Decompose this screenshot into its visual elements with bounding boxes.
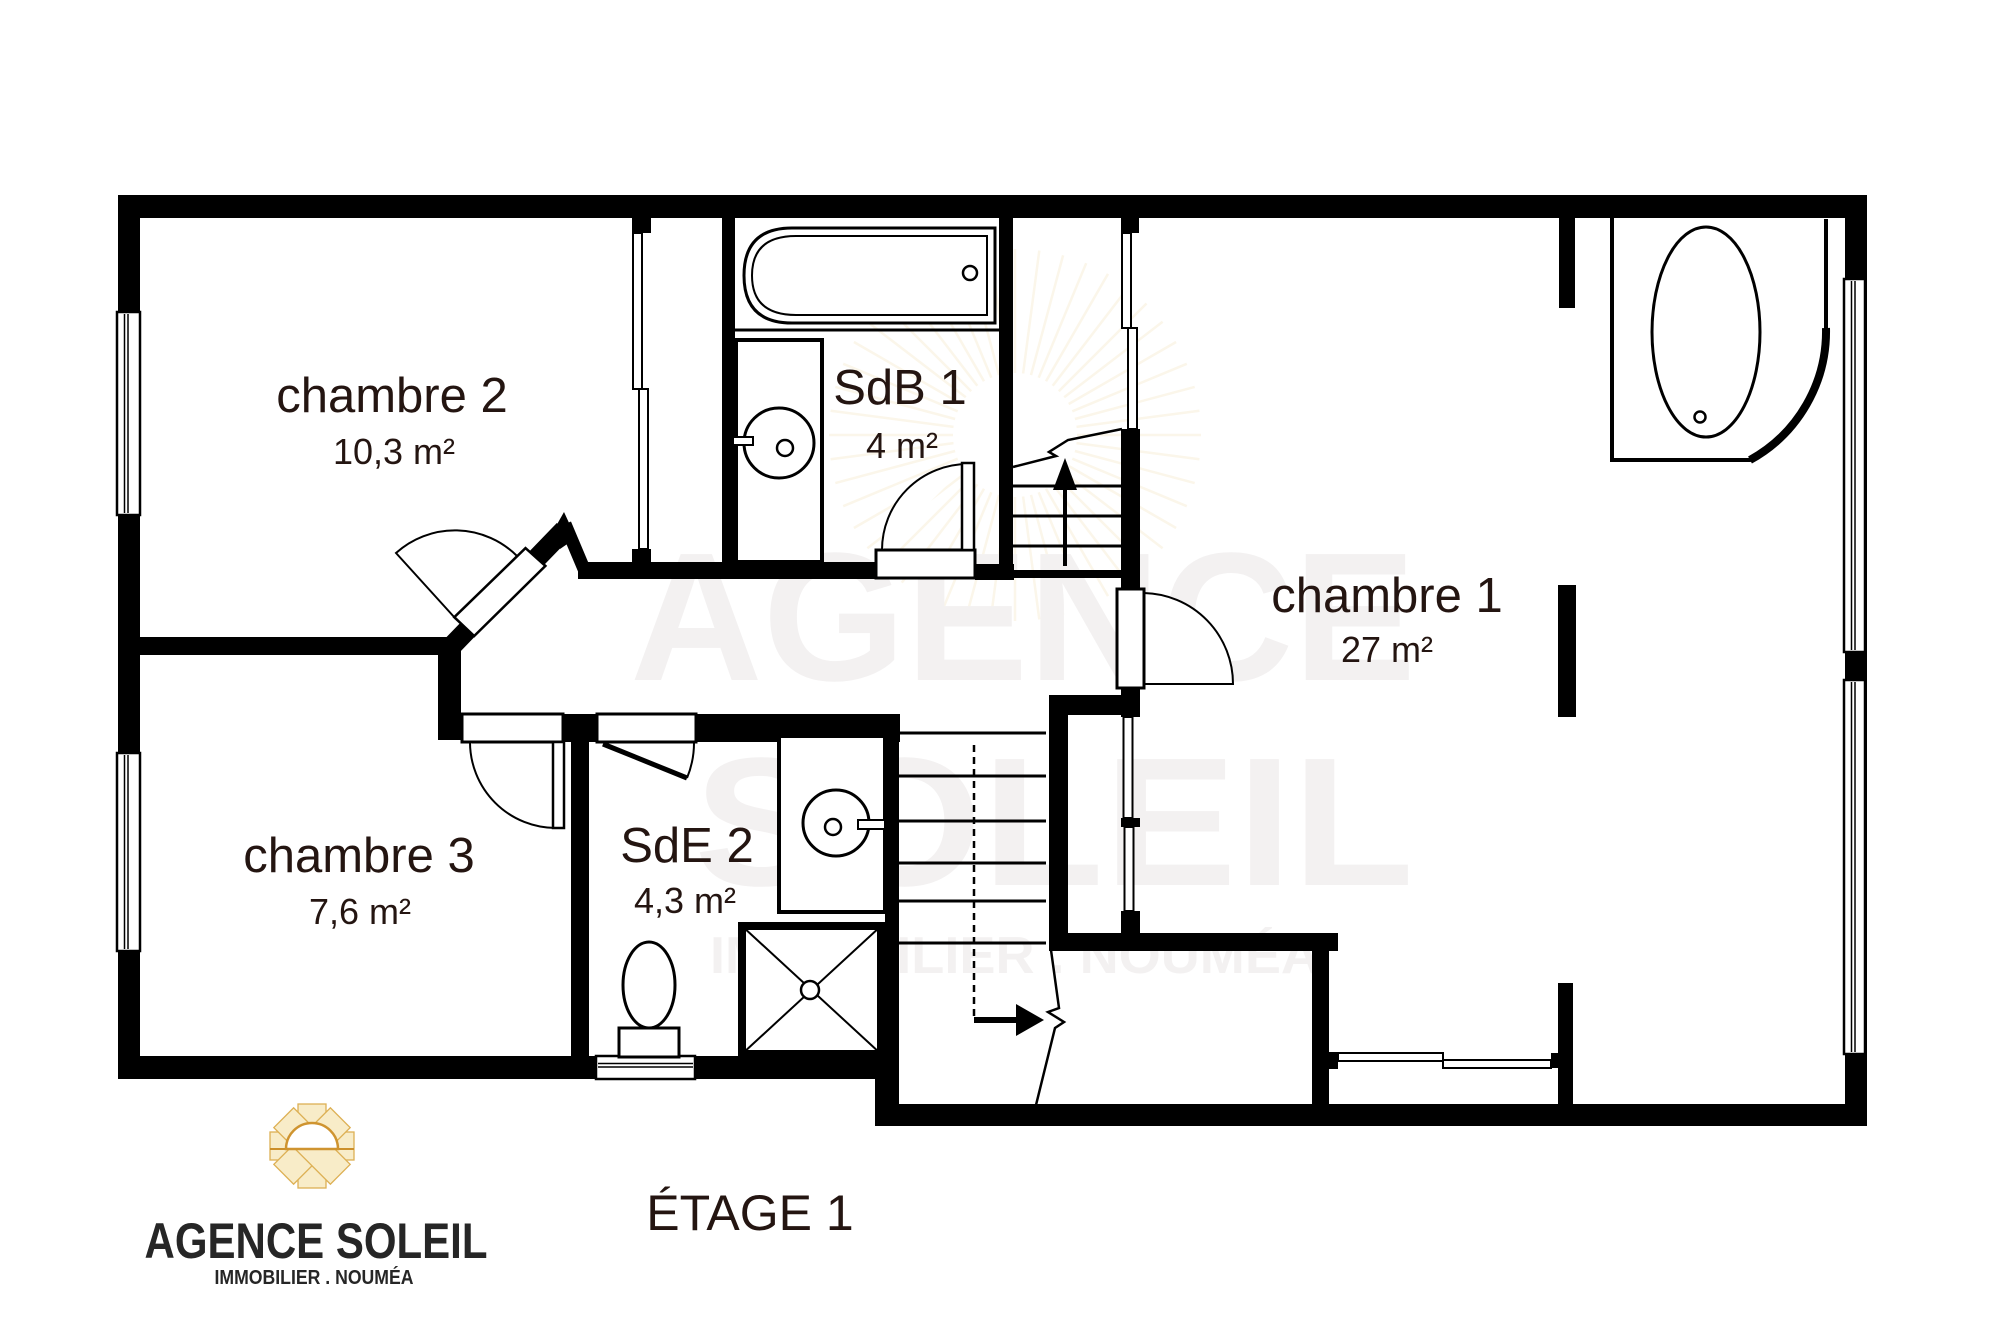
svg-text:10,3 m²: 10,3 m² (333, 431, 455, 472)
svg-text:4 m²: 4 m² (866, 425, 938, 466)
svg-text:AGENCE SOLEIL: AGENCE SOLEIL (145, 1213, 488, 1269)
svg-text:7,6 m²: 7,6 m² (309, 891, 411, 932)
svg-text:chambre 3: chambre 3 (243, 829, 475, 883)
svg-text:IMMOBILIER . NOUMÉA: IMMOBILIER . NOUMÉA (215, 1266, 414, 1289)
svg-text:SdE 2: SdE 2 (620, 819, 753, 873)
svg-text:ÉTAGE 1: ÉTAGE 1 (646, 1185, 853, 1241)
svg-text:27 m²: 27 m² (1341, 629, 1433, 670)
svg-text:SdB 1: SdB 1 (833, 361, 966, 415)
svg-text:chambre 1: chambre 1 (1271, 569, 1503, 623)
svg-text:chambre 2: chambre 2 (276, 369, 508, 423)
svg-text:4,3 m²: 4,3 m² (634, 880, 736, 921)
